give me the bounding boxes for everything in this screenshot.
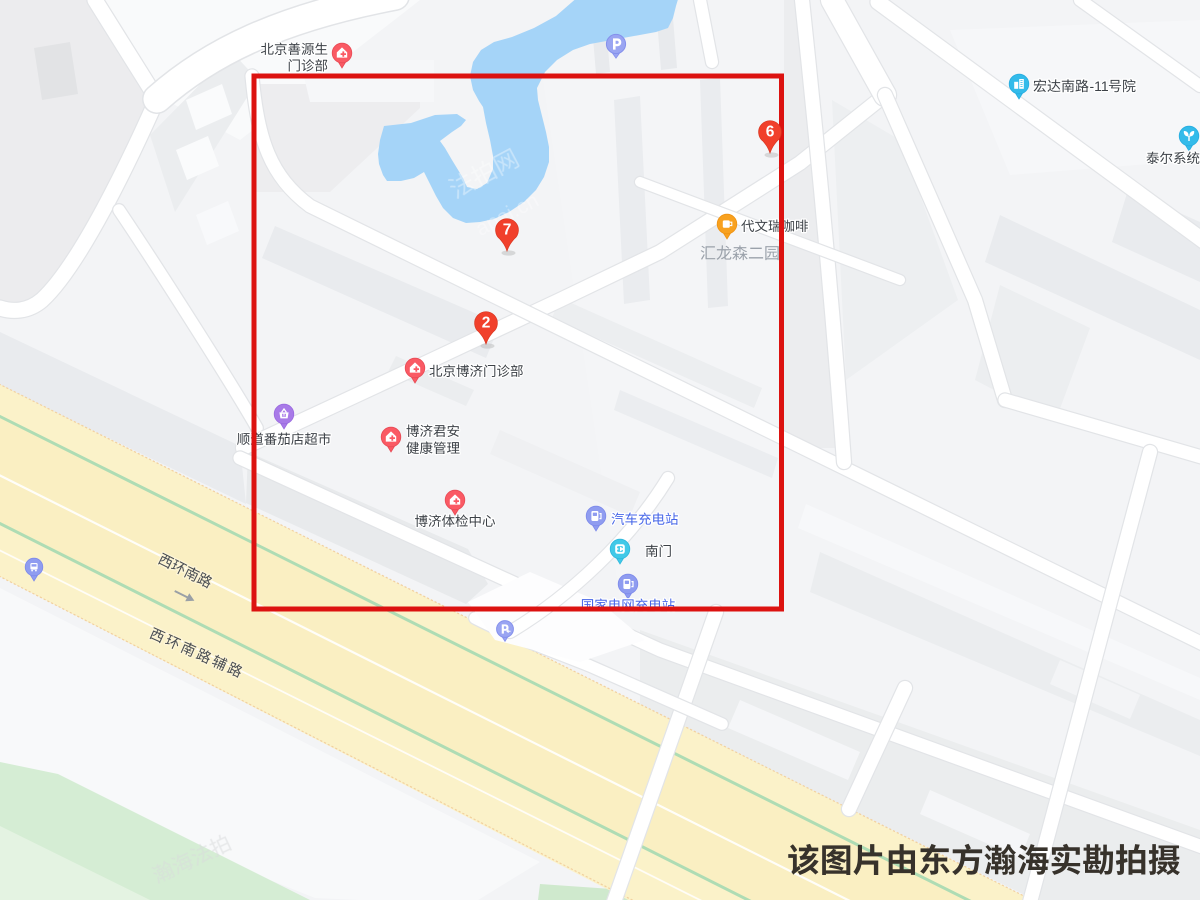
- svg-text:2: 2: [482, 314, 491, 331]
- svg-text:7: 7: [503, 221, 512, 238]
- svg-text:6: 6: [766, 123, 775, 140]
- svg-text:-11: -11: [1090, 78, 1109, 94]
